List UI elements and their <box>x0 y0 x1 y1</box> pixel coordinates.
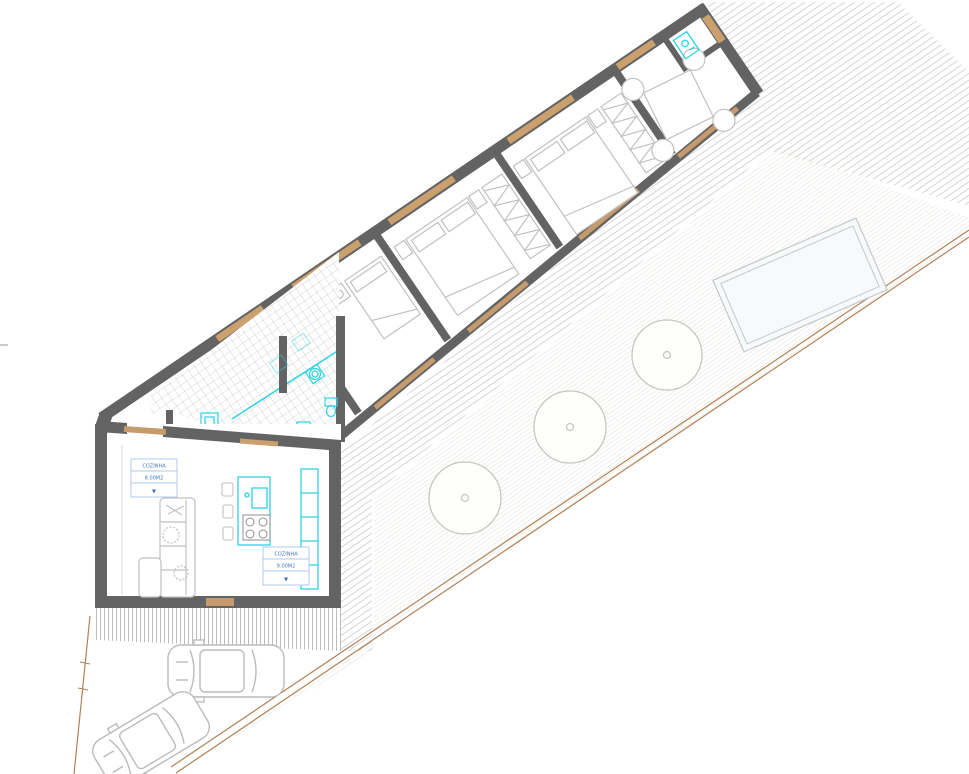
room-area: 9.00M2 <box>277 564 296 570</box>
mirror <box>194 640 204 645</box>
bar-stool <box>223 527 233 540</box>
wall-bath-east <box>336 316 345 442</box>
hall-door <box>240 441 278 444</box>
room-area: 8.00M2 <box>145 476 164 482</box>
wall-east-lr <box>329 440 341 608</box>
site-plan-svg: COZINHA 8.00M2 ▼ COZINHA 9.00M2 ▼ <box>0 0 969 774</box>
armchair <box>139 558 161 597</box>
site-plan-page: COZINHA 8.00M2 ▼ COZINHA 9.00M2 ▼ <box>0 0 969 774</box>
room-label-2: COZINHA 9.00M2 ▼ <box>263 547 309 585</box>
entry-door <box>124 429 166 432</box>
room-name: COZINHA <box>142 464 166 470</box>
room-label-1: COZINHA 8.00M2 ▼ <box>131 459 177 497</box>
wall-bath-mid <box>279 336 287 393</box>
living-room: COZINHA 8.00M2 ▼ COZINHA 9.00M2 ▼ <box>95 412 341 608</box>
bar-stool <box>223 505 233 518</box>
room-name: COZINHA <box>274 552 298 558</box>
wall-west <box>95 424 107 608</box>
terrace-door <box>206 598 234 606</box>
tree <box>632 320 702 390</box>
bar-stool <box>222 483 233 496</box>
tree <box>429 462 501 534</box>
tree <box>534 391 606 463</box>
